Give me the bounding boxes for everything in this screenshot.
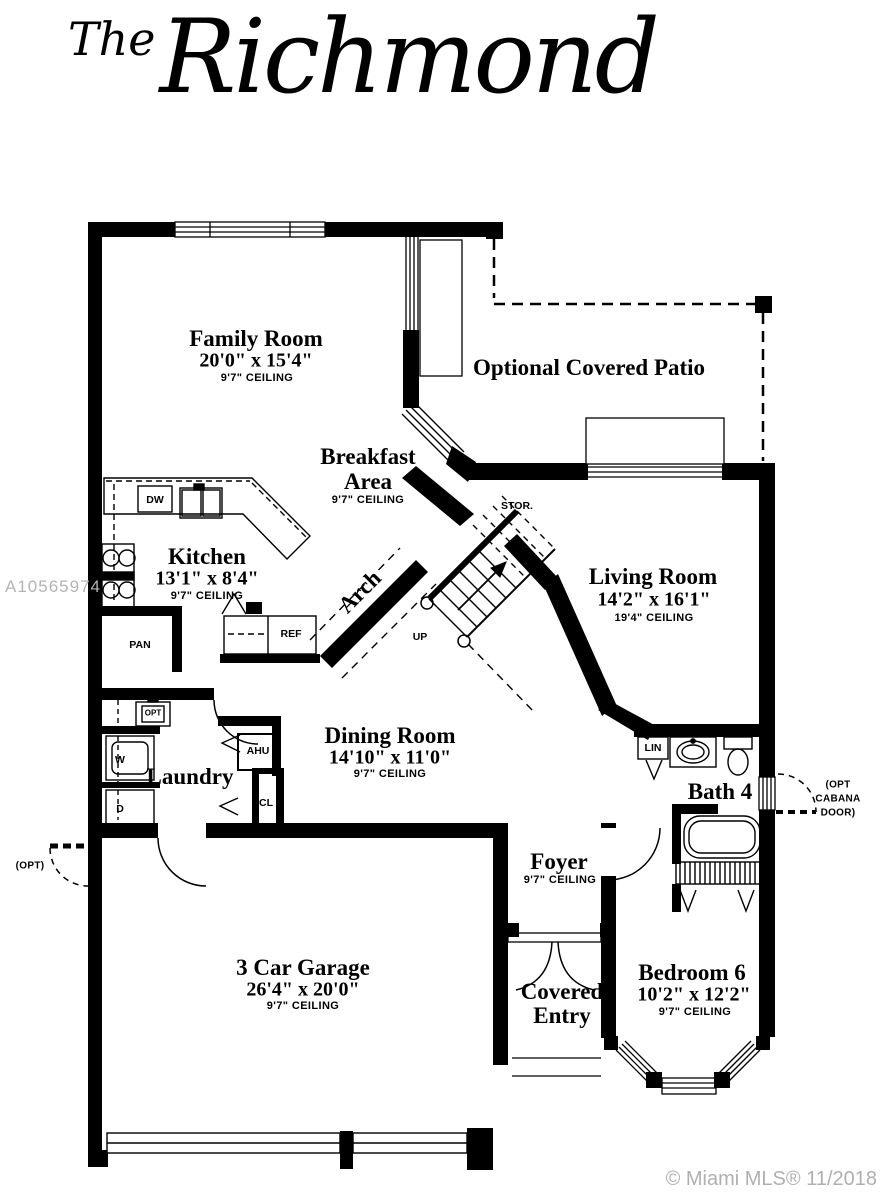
copyright: © Miami MLS® 11/2018 bbox=[666, 1168, 877, 1191]
floor-plan-page: The Richmond A10565974 © Miami MLS® 11/2… bbox=[0, 0, 885, 1200]
up-label: UP bbox=[413, 631, 428, 643]
garage-label: 3 Car Garage bbox=[236, 955, 370, 981]
refrigerator-label: REF bbox=[281, 628, 302, 640]
foyer-label: Foyer bbox=[530, 849, 587, 875]
watermark: A10565974 bbox=[5, 577, 101, 597]
family-room-dims: 20'0" x 15'4" bbox=[199, 350, 312, 373]
floor-plan-drawing bbox=[0, 0, 885, 1200]
kitchen-label: Kitchen bbox=[168, 544, 246, 570]
garage-dims: 26'4" x 20'0" bbox=[246, 979, 359, 1002]
covered-entry-label-line1: Covered bbox=[521, 979, 604, 1005]
cabana-note-line2: CABANA bbox=[815, 794, 860, 805]
kitchen-fixtures bbox=[102, 478, 436, 678]
dishwasher-label: DW bbox=[146, 494, 164, 506]
patio-label: Optional Covered Patio bbox=[473, 355, 705, 381]
bedroom6-label: Bedroom 6 bbox=[638, 960, 746, 986]
breakfast-label-line2: Area bbox=[344, 469, 392, 495]
family-room-ceiling: 9'7" CEILING bbox=[221, 372, 294, 384]
cabana-note-line3: DOOR) bbox=[821, 808, 856, 819]
stairs bbox=[421, 496, 555, 714]
title-prefix: The bbox=[68, 12, 156, 66]
dining-room-ceiling: 9'7" CEILING bbox=[354, 768, 427, 780]
family-room-label: Family Room bbox=[189, 326, 323, 352]
laundry-label: Laundry bbox=[147, 764, 234, 790]
washer-label: W bbox=[115, 754, 125, 766]
opt-sink-label: OPT bbox=[145, 709, 161, 718]
bedroom6-dims: 10'2" x 12'2" bbox=[637, 984, 750, 1007]
living-room-label: Living Room bbox=[589, 564, 717, 590]
opt-door-note: (OPT) bbox=[16, 861, 45, 872]
dining-room-dims: 14'10" x 11'0" bbox=[329, 747, 451, 770]
covered-entry-label-line2: Entry bbox=[533, 1003, 591, 1029]
bath-fixtures bbox=[638, 737, 762, 911]
linen-label: LIN bbox=[645, 742, 662, 754]
ahu-label: AHU bbox=[247, 745, 270, 757]
bedroom6-ceiling: 9'7" CEILING bbox=[659, 1006, 732, 1018]
kitchen-dims: 13'1" x 8'4" bbox=[155, 568, 258, 591]
cabana-note-line1: (OPT bbox=[825, 780, 850, 791]
living-room-ceiling: 19'4" CEILING bbox=[614, 612, 693, 624]
pantry-label: PAN bbox=[129, 639, 150, 651]
title-name: Richmond bbox=[160, 2, 657, 114]
bay-window bbox=[616, 1041, 760, 1094]
bath4-label: Bath 4 bbox=[688, 779, 753, 805]
garage-ceiling: 9'7" CEILING bbox=[267, 1000, 340, 1012]
covered-entry-steps bbox=[512, 1058, 601, 1076]
kitchen-ceiling: 9'7" CEILING bbox=[171, 590, 244, 602]
plan-title: The Richmond bbox=[68, 2, 657, 114]
breakfast-label-line1: Breakfast bbox=[320, 444, 415, 470]
closet-label: CL bbox=[259, 797, 273, 809]
living-room-dims: 14'2" x 16'1" bbox=[597, 589, 710, 612]
storage-label: STOR. bbox=[501, 500, 533, 512]
dining-room-label: Dining Room bbox=[325, 723, 456, 749]
foyer-ceiling: 9'7" CEILING bbox=[524, 874, 597, 886]
breakfast-ceiling: 9'7" CEILING bbox=[332, 494, 405, 506]
garage-doors bbox=[107, 1133, 467, 1153]
dryer-label: D bbox=[116, 803, 124, 815]
